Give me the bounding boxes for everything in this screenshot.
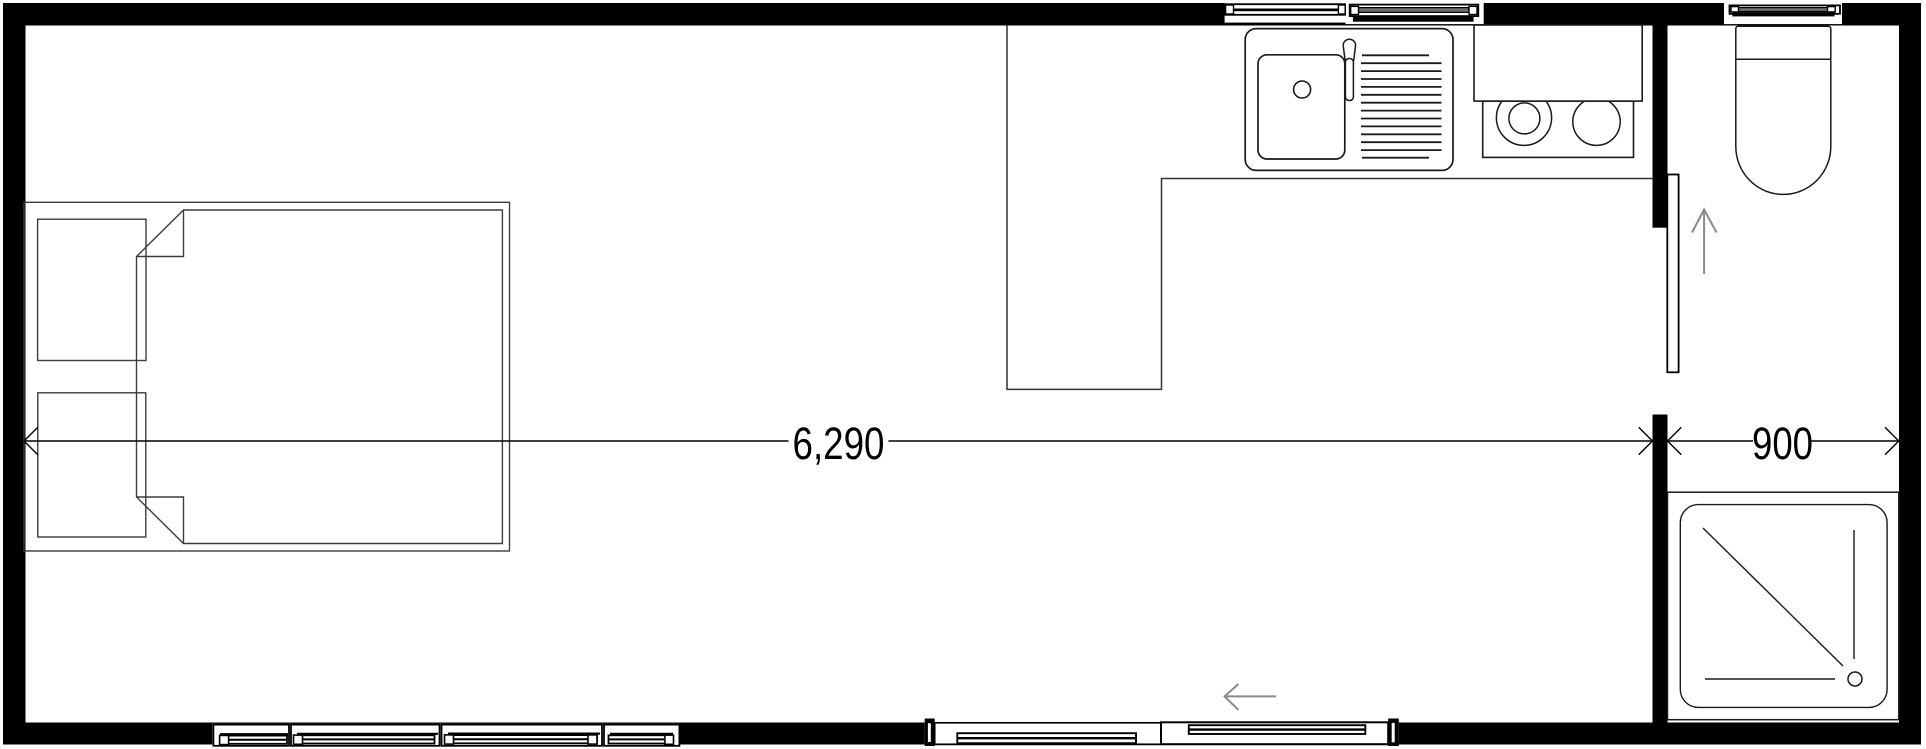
svg-text:6,290: 6,290 [793,418,885,469]
svg-text:900: 900 [1752,418,1813,469]
